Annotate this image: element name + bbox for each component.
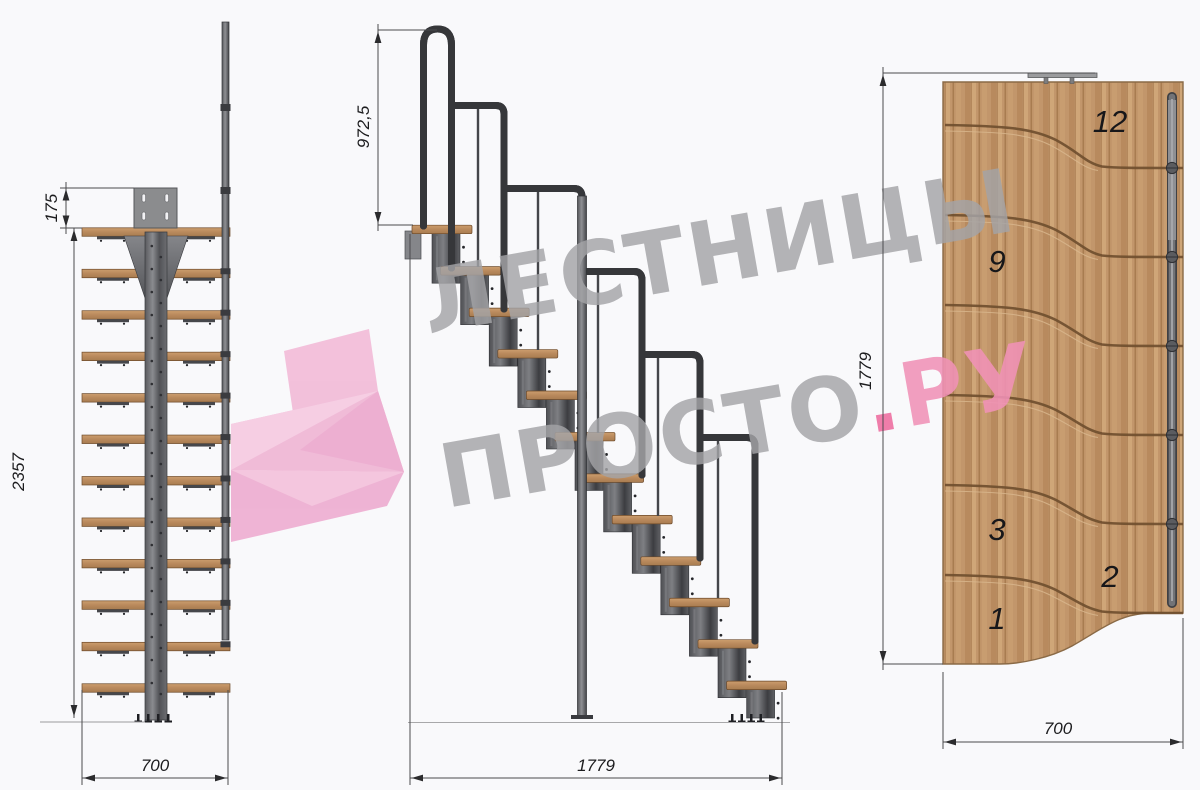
foot bbox=[165, 721, 173, 723]
dimension-arrow bbox=[412, 775, 424, 782]
plan-handrail bbox=[1166, 97, 1178, 603]
side-support-base bbox=[571, 715, 593, 719]
watermark: ЛЕСТНИЦЫ ПРОСТО.РУ bbox=[231, 149, 1046, 542]
tread-bracket bbox=[97, 278, 129, 281]
tread-bracket bbox=[183, 278, 215, 281]
foot bbox=[145, 721, 153, 723]
tread-bracket bbox=[183, 692, 215, 695]
bolt bbox=[151, 314, 154, 317]
bolt bbox=[151, 268, 154, 271]
dim-front-width: 700 bbox=[141, 756, 170, 775]
dimension-arrow bbox=[84, 775, 96, 782]
side-tread bbox=[641, 557, 701, 566]
step-label-2: 2 bbox=[1100, 559, 1118, 594]
tread-bracket bbox=[97, 361, 129, 364]
tread-bracket bbox=[97, 444, 129, 447]
bolt bbox=[151, 498, 154, 501]
tread-bracket bbox=[183, 319, 215, 322]
tread-bracket bbox=[97, 319, 129, 322]
dimension-arrow bbox=[63, 216, 70, 228]
dim-side-length: 1779 bbox=[577, 756, 615, 775]
tread-bracket bbox=[97, 692, 129, 695]
tread-bracket bbox=[183, 444, 215, 447]
tread-bracket bbox=[183, 526, 215, 529]
bolt bbox=[151, 475, 154, 478]
foot bbox=[741, 714, 744, 721]
dimension-arrow bbox=[880, 75, 887, 87]
post-joint bbox=[221, 558, 231, 564]
post-joint bbox=[221, 517, 231, 523]
bolt bbox=[160, 394, 163, 397]
bolt bbox=[160, 371, 163, 374]
bolt bbox=[151, 521, 154, 524]
bolt bbox=[151, 245, 154, 248]
dim-side-rail-height: 972,5 bbox=[354, 105, 373, 148]
dim-front-height: 2357 bbox=[9, 453, 28, 492]
foot bbox=[760, 714, 763, 721]
bolt bbox=[151, 452, 154, 455]
tread-bracket bbox=[183, 609, 215, 612]
bolt bbox=[160, 325, 163, 328]
post-joint bbox=[221, 393, 231, 399]
bolt bbox=[160, 486, 163, 489]
bolt bbox=[151, 613, 154, 616]
foot bbox=[155, 721, 163, 723]
post-joint bbox=[221, 187, 231, 194]
bolt bbox=[160, 440, 163, 443]
tread-bracket bbox=[97, 568, 129, 571]
bolt bbox=[151, 636, 154, 639]
bolt bbox=[160, 279, 163, 282]
post-joint bbox=[221, 641, 231, 647]
side-tread bbox=[727, 681, 787, 690]
side-tread bbox=[698, 640, 758, 649]
dimension-arrow bbox=[1170, 739, 1182, 746]
front-center-column bbox=[145, 232, 167, 720]
post-joint bbox=[221, 268, 231, 274]
bolt bbox=[160, 624, 163, 627]
tread-bracket bbox=[183, 402, 215, 405]
side-tread bbox=[612, 515, 672, 524]
tread-bracket bbox=[183, 361, 215, 364]
bolt bbox=[160, 693, 163, 696]
tread-bracket bbox=[97, 402, 129, 405]
dimension-arrow bbox=[71, 705, 78, 717]
post-joint bbox=[221, 476, 231, 482]
bolt bbox=[151, 360, 154, 363]
side-tread bbox=[498, 350, 558, 359]
step-label-1: 1 bbox=[988, 601, 1005, 636]
bolt bbox=[160, 256, 163, 259]
post-joint bbox=[221, 104, 231, 111]
bolt bbox=[160, 670, 163, 673]
post-joint bbox=[221, 434, 231, 440]
post-joint bbox=[221, 310, 231, 316]
bolt bbox=[151, 429, 154, 432]
dimension-arrow bbox=[375, 212, 382, 224]
post-joint bbox=[221, 351, 231, 357]
bolt bbox=[160, 348, 163, 351]
tread-bracket bbox=[183, 568, 215, 571]
step-label-9: 9 bbox=[988, 244, 1005, 279]
bolt bbox=[151, 337, 154, 340]
tread-bracket bbox=[97, 485, 129, 488]
step-label-12: 12 bbox=[1093, 104, 1127, 139]
side-tread bbox=[669, 598, 729, 607]
bolt bbox=[151, 406, 154, 409]
watermark-prosto: ПРОСТО bbox=[432, 353, 874, 529]
bolt bbox=[151, 291, 154, 294]
dimension-arrow bbox=[769, 775, 781, 782]
front-handrail-post bbox=[222, 22, 229, 640]
dimension-arrow bbox=[71, 230, 78, 242]
foot bbox=[167, 714, 170, 721]
front-view bbox=[40, 22, 231, 723]
foot bbox=[750, 714, 753, 721]
tread-bracket bbox=[183, 485, 215, 488]
foot bbox=[137, 714, 140, 721]
staircase-drawing: ЛЕСТНИЦЫ ПРОСТО.РУ 175 2357 700 972,5 17… bbox=[0, 0, 1200, 790]
dim-front-offset: 175 bbox=[42, 193, 61, 222]
tread-bracket bbox=[97, 526, 129, 529]
bolt bbox=[151, 544, 154, 547]
bolt bbox=[151, 590, 154, 593]
tread-bracket bbox=[183, 651, 215, 654]
drawing-svg: ЛЕСТНИЦЫ ПРОСТО.РУ 175 2357 700 972,5 17… bbox=[0, 0, 1200, 790]
bolt bbox=[151, 567, 154, 570]
bolt bbox=[151, 682, 154, 685]
foot bbox=[731, 714, 734, 721]
dimension-arrow bbox=[945, 739, 957, 746]
bolt bbox=[160, 532, 163, 535]
bolt bbox=[160, 463, 163, 466]
dimension-arrow bbox=[375, 32, 382, 44]
front-wall-plate bbox=[134, 188, 177, 228]
bolt bbox=[160, 647, 163, 650]
bolt bbox=[160, 601, 163, 604]
dimension-arrow bbox=[63, 189, 70, 201]
bolt bbox=[160, 417, 163, 420]
tread-bracket bbox=[97, 651, 129, 654]
post-joint bbox=[221, 600, 231, 606]
dimension-arrow bbox=[215, 775, 227, 782]
dimension-arrow bbox=[880, 651, 887, 663]
foot bbox=[157, 714, 160, 721]
dim-plan-width: 700 bbox=[1044, 719, 1073, 738]
dim-plan-length: 1779 bbox=[856, 352, 875, 390]
bolt bbox=[160, 578, 163, 581]
bolt bbox=[151, 659, 154, 662]
foot bbox=[147, 714, 150, 721]
bolt bbox=[160, 509, 163, 512]
bolt bbox=[160, 555, 163, 558]
bolt bbox=[151, 383, 154, 386]
watermark-logo bbox=[231, 329, 404, 542]
step-label-3: 3 bbox=[988, 512, 1005, 547]
tread-bracket bbox=[97, 609, 129, 612]
bolt bbox=[160, 302, 163, 305]
